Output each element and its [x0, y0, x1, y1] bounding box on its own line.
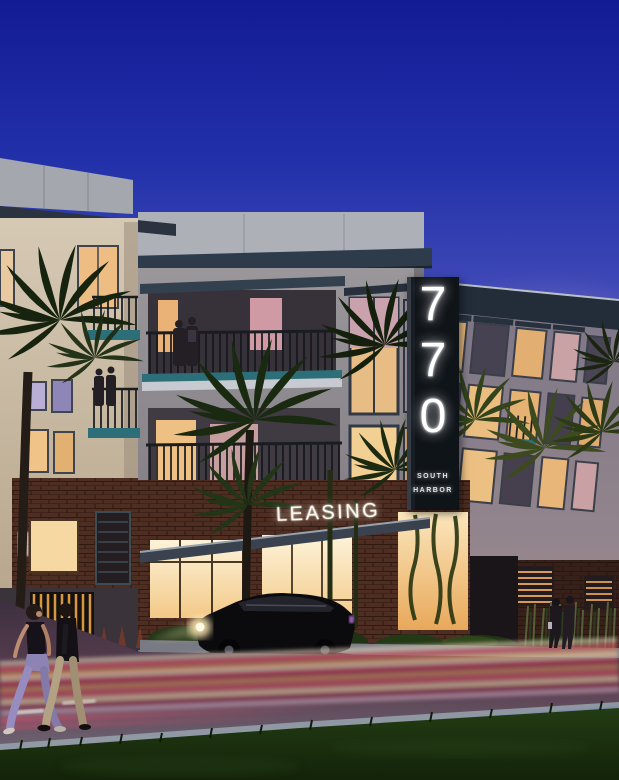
pylon-sign-digits: 7 7 0	[407, 283, 459, 439]
pylon-digit-2: 7	[420, 339, 447, 383]
dusk-apartment-rendering: 7 7 0 SOUTH HARBOR LEASING	[0, 0, 619, 780]
pylon-digit-3: 0	[420, 395, 447, 439]
scene-artwork	[0, 0, 619, 780]
pylon-sign: 7 7 0 SOUTH HARBOR	[407, 277, 459, 510]
pylon-digit-1: 7	[420, 283, 447, 327]
pylon-sign-line2: HARBOR	[407, 487, 459, 494]
pylon-sign-line1: SOUTH	[407, 473, 459, 480]
